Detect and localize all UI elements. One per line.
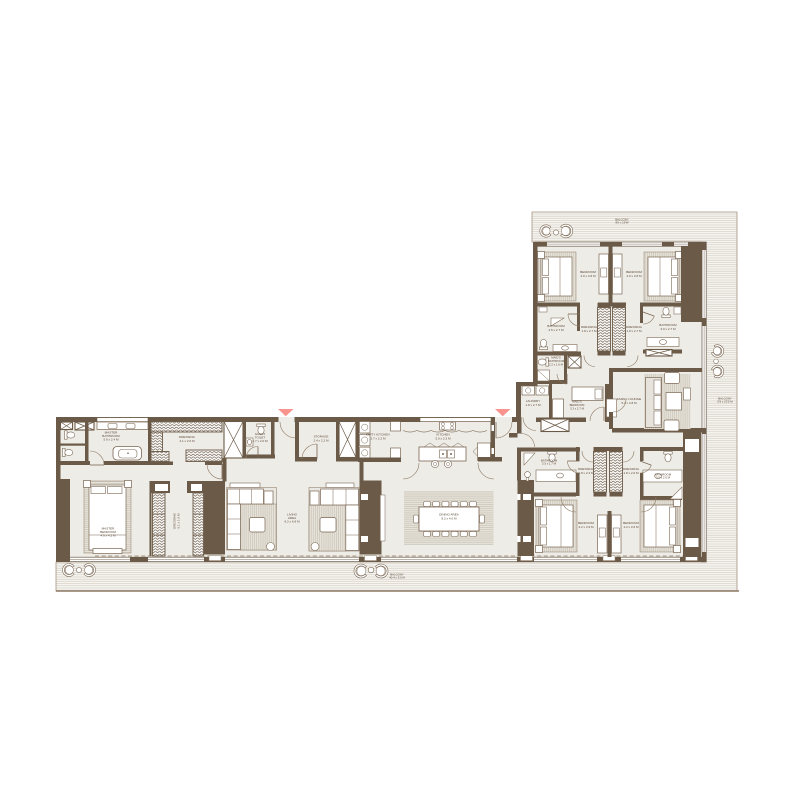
svg-text:BALCONY5'9 x 23'5 M: BALCONY5'9 x 23'5 M [717,396,733,403]
svg-text:DRESSING1.8 x 2.6 M: DRESSING1.8 x 2.6 M [623,467,640,475]
svg-text:BATHROOM3.0 x 2.7 M: BATHROOM3.0 x 2.7 M [659,323,677,331]
svg-text:BEDROOM4.0 x 3.8 M: BEDROOM4.0 x 3.8 M [580,270,596,278]
svg-text:KITCHEN5.0 x 2.2 M: KITCHEN5.0 x 2.2 M [435,433,451,441]
svg-text:DRESSING1.8 x 2.7 M: DRESSING1.8 x 2.7 M [626,325,643,333]
svg-text:DRESSING6.1 x 1.6 M: DRESSING6.1 x 1.6 M [173,512,181,529]
svg-text:BATHROOM2.5 x 2.7 M: BATHROOM2.5 x 2.7 M [547,324,565,332]
svg-text:BALCONY8'0 x 19'W: BALCONY8'0 x 19'W [615,217,629,224]
svg-text:LAUNDRY1.8 x 2.7 M: LAUNDRY1.8 x 2.7 M [525,399,541,407]
svg-text:BEDROOM4.2 x 3.9 M: BEDROOM4.2 x 3.9 M [578,521,594,529]
svg-text:BATHROOM3.5 x 2.6 M: BATHROOM3.5 x 2.6 M [655,472,672,479]
svg-text:BALCONY40.4 x 3.0 M: BALCONY40.4 x 3.0 M [389,572,405,579]
svg-text:DRESSING1.8 x 2.3 M: DRESSING1.8 x 2.3 M [578,467,595,475]
svg-text:STORAGE2.4 x 2.2 M: STORAGE2.4 x 2.2 M [313,435,329,443]
svg-text:DRESSING4.1 x 2.6 M: DRESSING4.1 x 2.6 M [179,435,196,443]
svg-text:DRESSING1.8 x 2.7 M: DRESSING1.8 x 2.7 M [581,325,598,333]
svg-text:BATHROOM3.5 x 1.7 M: BATHROOM3.5 x 1.7 M [541,458,558,465]
svg-text:BEDROOM4.2 x 3.6 M: BEDROOM4.2 x 3.6 M [623,521,639,529]
svg-text:BEDROOM4.0 x 3.8 M: BEDROOM4.0 x 3.8 M [626,270,642,278]
svg-text:MASTERBEDROOM4.9 x 4.2 M: MASTERBEDROOM4.9 x 4.2 M [100,526,116,537]
